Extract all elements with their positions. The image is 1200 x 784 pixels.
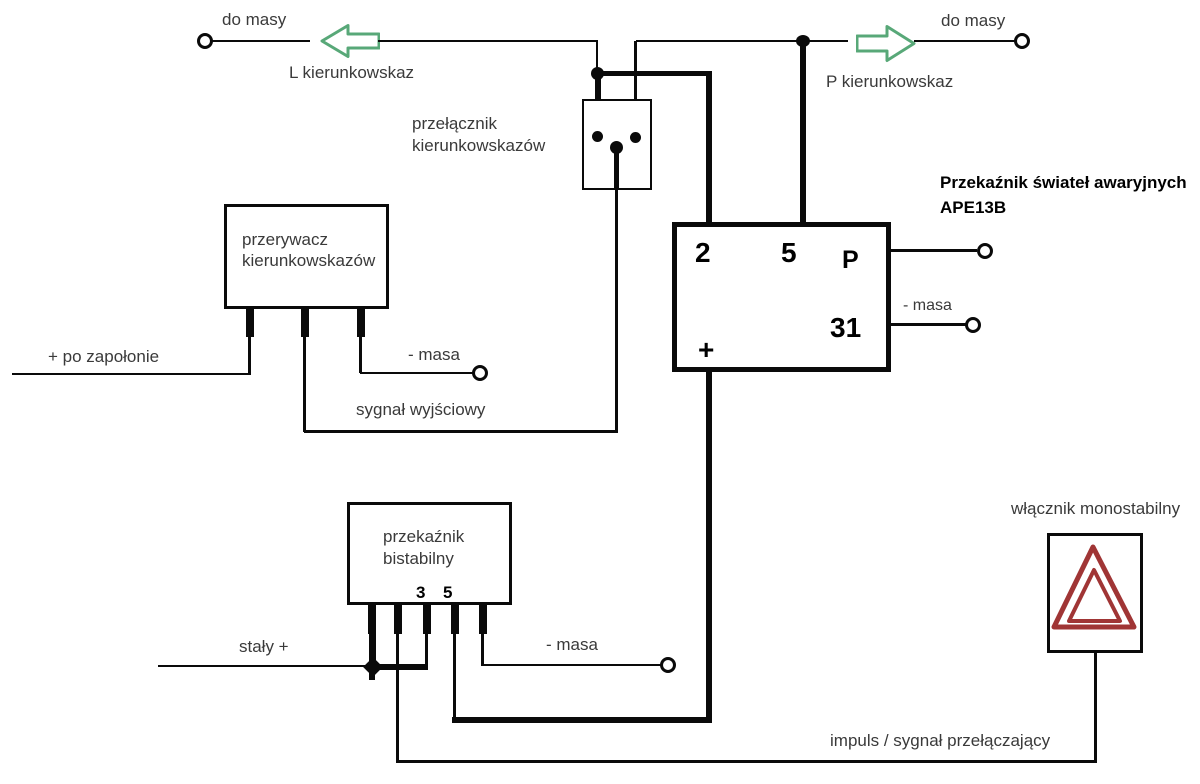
label-impulse: impuls / sygnał przełączający — [830, 730, 1050, 751]
label-ground-left: do masy — [222, 9, 286, 30]
label-bistable: przekaźnik bistabilny — [383, 526, 464, 570]
arrow-right-icon — [856, 23, 918, 63]
relay-pin-31-label: 31 — [830, 312, 861, 344]
wire-constant-plus — [158, 665, 368, 667]
wire-flasher-pin3-drop — [359, 336, 362, 373]
wire-pin5-riser — [800, 41, 806, 223]
flasher-pin-3 — [357, 308, 365, 337]
label-left-indicator: L kierunkowskaz — [289, 62, 414, 83]
wire-bistable-pin5-drop — [481, 633, 484, 666]
relay-pin-5-label: 5 — [781, 237, 797, 269]
label-ground-right: do masy — [941, 10, 1005, 31]
bistable-pin-3 — [423, 604, 431, 634]
arrow-left-icon — [318, 24, 380, 58]
relay-pin-p-label: P — [842, 246, 859, 275]
wire-bistable-ground — [483, 664, 661, 666]
label-flasher-ground: - masa — [408, 344, 460, 365]
label-turn-switch: przełącznik kierunkowskazów — [412, 113, 545, 157]
label-ignition: + po zapołonie — [48, 346, 159, 367]
wire-to-pin2 — [598, 71, 710, 76]
hazard-triangle-icon — [1050, 537, 1140, 649]
label-right-indicator: P kierunkowskaz — [826, 71, 953, 92]
wire-impulse-riser — [1094, 653, 1097, 763]
wire-right-ground — [914, 40, 1016, 42]
switch-contact-left — [592, 131, 603, 142]
wire-switch-center-thick — [614, 148, 619, 190]
label-monostable: włącznik monostabilny — [1011, 498, 1180, 519]
flasher-pin-1 — [246, 308, 254, 337]
terminal-flasher-ground — [472, 365, 488, 381]
bistable-pin-1 — [368, 604, 376, 634]
wire-pin2-riser — [706, 71, 712, 223]
label-relay-ground: - masa — [903, 295, 952, 316]
wire-relay-31 — [891, 323, 966, 326]
label-bistable-ground: - masa — [546, 634, 598, 655]
bistable-pin-2 — [394, 604, 402, 634]
wire-bistable-pin2-drop — [396, 633, 399, 763]
terminal-relay-p — [977, 243, 993, 259]
terminal-relay-31 — [965, 317, 981, 333]
wire-left-to-switch — [378, 40, 598, 42]
switch-contact-right — [630, 132, 641, 143]
wire-flasher-pin2-drop — [303, 336, 306, 432]
wire-relay-plus-horizontal — [452, 717, 712, 723]
terminal-ground-right — [1014, 33, 1030, 49]
bistable-pin-4 — [451, 604, 459, 634]
wire-left-ground — [212, 40, 310, 42]
wire-right-top — [636, 40, 848, 42]
wire-switch-center-drop — [615, 190, 618, 433]
bistable-pin-5-label: 5 — [443, 583, 452, 603]
label-constant-plus: stały + — [239, 636, 289, 657]
wire-bistable-pin3-drop — [425, 633, 428, 667]
relay-pin-plus-label: + — [698, 334, 714, 366]
label-output-signal: sygnał wyjściowy — [356, 399, 485, 420]
wire-bistable-pin4-drop — [453, 633, 456, 720]
terminal-ground-left — [197, 33, 213, 49]
flasher-pin-2 — [301, 308, 309, 337]
label-flasher: przerywacz kierunkowskazów — [242, 229, 375, 271]
wire-relay-plus-riser — [706, 372, 712, 722]
wire-output-signal — [304, 430, 618, 433]
label-relay-title: Przekaźnik świateł awaryjnych — [940, 172, 1187, 193]
wire-impulse-bottom — [396, 760, 1097, 763]
wire-pin1-pin3-jumper — [372, 664, 428, 670]
wire-relay-p — [891, 249, 977, 252]
relay-pin-2-label: 2 — [695, 237, 711, 269]
wiring-diagram: do masy L kierunkowskaz P kierunkowskaz … — [0, 0, 1200, 784]
wire-ignition — [12, 373, 250, 375]
bistable-pin-5 — [479, 604, 487, 634]
wire-flasher-ground — [360, 372, 473, 374]
bistable-pin-3-label: 3 — [416, 583, 425, 603]
terminal-bistable-ground — [660, 657, 676, 673]
wire-flasher-pin1-drop — [248, 336, 251, 375]
label-relay-model: APE13B — [940, 197, 1006, 218]
